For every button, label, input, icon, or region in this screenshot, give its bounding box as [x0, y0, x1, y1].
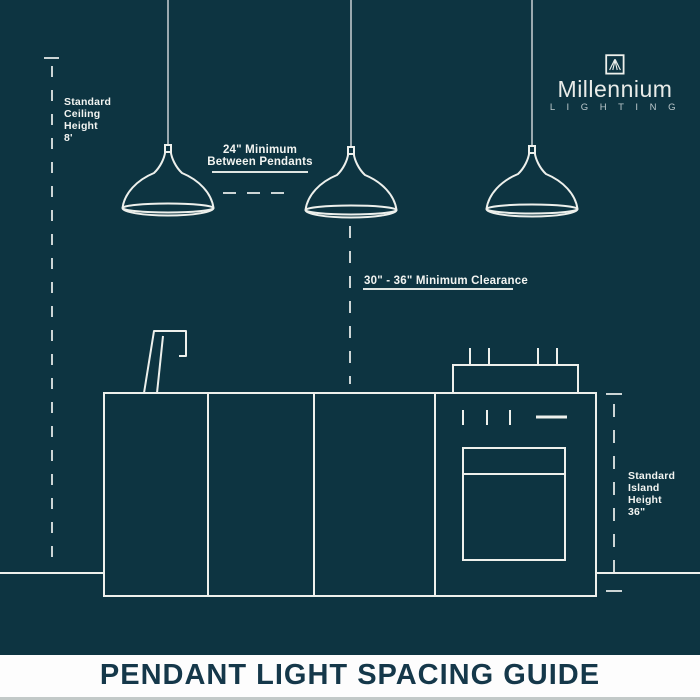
brand-logo: Millennium L I G H T I N G — [545, 54, 685, 113]
pendant-spacing-guide: Standard Ceiling Height 8' 24" Minimum B… — [0, 0, 700, 700]
brand-name: Millennium — [558, 78, 673, 101]
clearance-label: 30" - 36" Minimum Clearance — [364, 275, 528, 287]
page-title: PENDANT LIGHT SPACING GUIDE — [100, 659, 600, 694]
island-height-label: Standard Island Height 36" — [628, 470, 675, 518]
footer-band: PENDANT LIGHT SPACING GUIDE — [0, 655, 700, 700]
between-pendants-label: 24" Minimum Between Pendants — [190, 145, 330, 168]
ceiling-height-measure-line — [44, 58, 59, 567]
pendant-light-icon — [487, 146, 578, 217]
island-height-measure-line — [606, 394, 622, 591]
oven-door — [463, 448, 565, 560]
stove-oven-icon — [453, 348, 578, 560]
clearance-underline — [363, 288, 513, 290]
between-pendants-underline — [212, 171, 308, 173]
faucet-icon — [144, 331, 186, 393]
ceiling-height-label: Standard Ceiling Height 8' — [64, 96, 111, 144]
brand-tagline: L I G H T I N G — [550, 103, 680, 113]
kitchen-island-icon — [104, 393, 596, 596]
stove-back-panel — [453, 365, 578, 393]
mountain-square-logo-icon — [605, 54, 625, 75]
